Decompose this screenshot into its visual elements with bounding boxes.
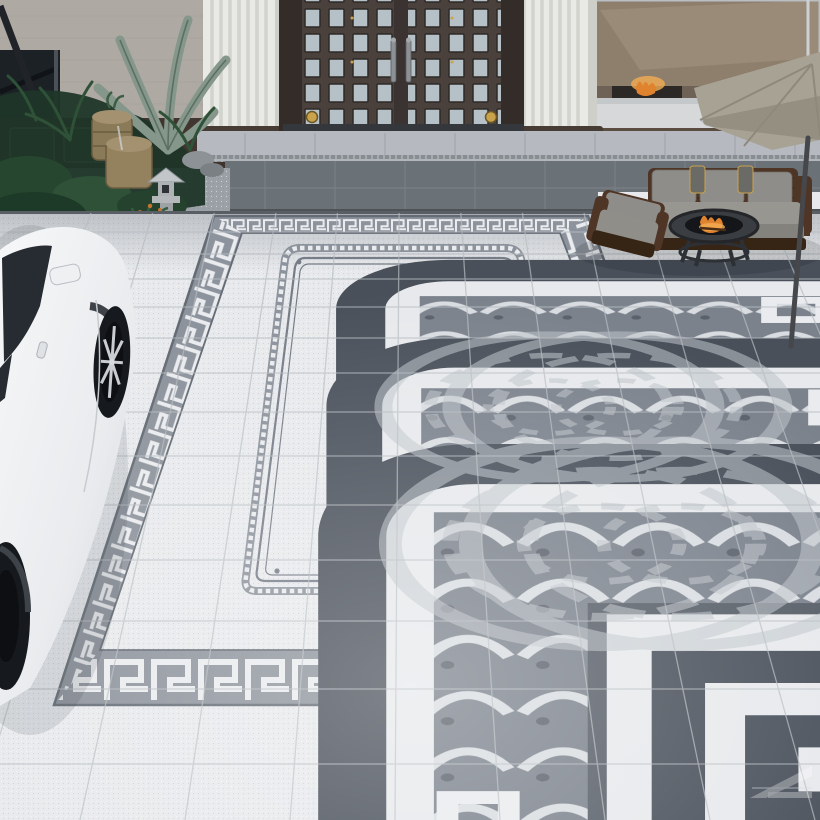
fireplace-flames — [636, 81, 656, 96]
courtyard-render — [0, 0, 820, 820]
column-flutes — [524, 0, 578, 130]
upper-platform — [197, 131, 820, 157]
door-knob-left — [307, 112, 318, 123]
entrance-door — [279, 0, 524, 133]
column-shaft — [515, 0, 597, 132]
scene — [0, 0, 820, 820]
accent-pillow — [738, 166, 753, 193]
accent-pillow — [690, 166, 705, 193]
step-mosaic-nosing — [197, 155, 820, 162]
door-knob-right — [486, 112, 497, 123]
column-shade-edge — [588, 0, 597, 132]
interior-back-wall — [600, 0, 820, 70]
rock — [200, 163, 224, 177]
